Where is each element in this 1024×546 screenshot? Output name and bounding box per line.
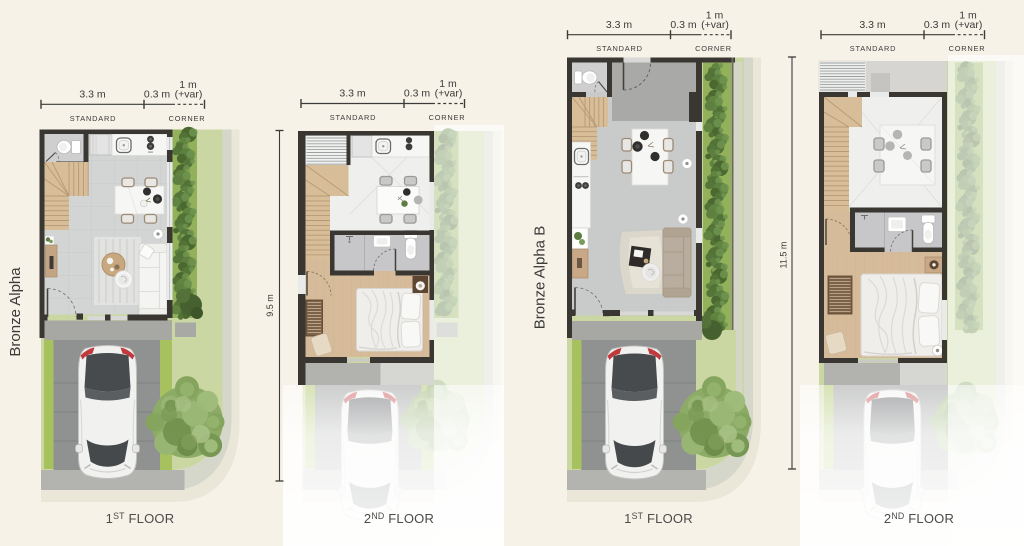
svg-text:CORNER: CORNER <box>695 44 732 53</box>
svg-text:Bronze Alpha B: Bronze Alpha B <box>532 226 549 329</box>
svg-text:CORNER: CORNER <box>429 113 466 122</box>
svg-text:(+var): (+var) <box>435 88 463 100</box>
svg-text:0.3 m: 0.3 m <box>670 19 697 31</box>
svg-text:STANDARD: STANDARD <box>330 113 377 122</box>
svg-text:3.3 m: 3.3 m <box>606 19 633 31</box>
svg-text:9.5 m: 9.5 m <box>265 294 275 317</box>
svg-text:STANDARD: STANDARD <box>850 44 897 53</box>
svg-text:(+var): (+var) <box>955 19 983 31</box>
svg-text:(+var): (+var) <box>175 89 203 101</box>
svg-text:11.5 m: 11.5 m <box>779 242 789 269</box>
svg-text:3.3 m: 3.3 m <box>859 19 886 31</box>
svg-text:0.3 m: 0.3 m <box>924 19 951 31</box>
svg-text:3.3 m: 3.3 m <box>339 88 366 100</box>
svg-text:CORNER: CORNER <box>169 114 206 123</box>
svg-text:3.3 m: 3.3 m <box>79 89 106 101</box>
svg-text:STANDARD: STANDARD <box>70 114 117 123</box>
svg-text:0.3 m: 0.3 m <box>404 88 431 100</box>
svg-text:CORNER: CORNER <box>949 44 986 53</box>
svg-text:0.3 m: 0.3 m <box>144 89 171 101</box>
svg-text:Bronze Alpha: Bronze Alpha <box>7 267 24 357</box>
svg-text:(+var): (+var) <box>701 19 729 31</box>
svg-text:STANDARD: STANDARD <box>596 44 643 53</box>
